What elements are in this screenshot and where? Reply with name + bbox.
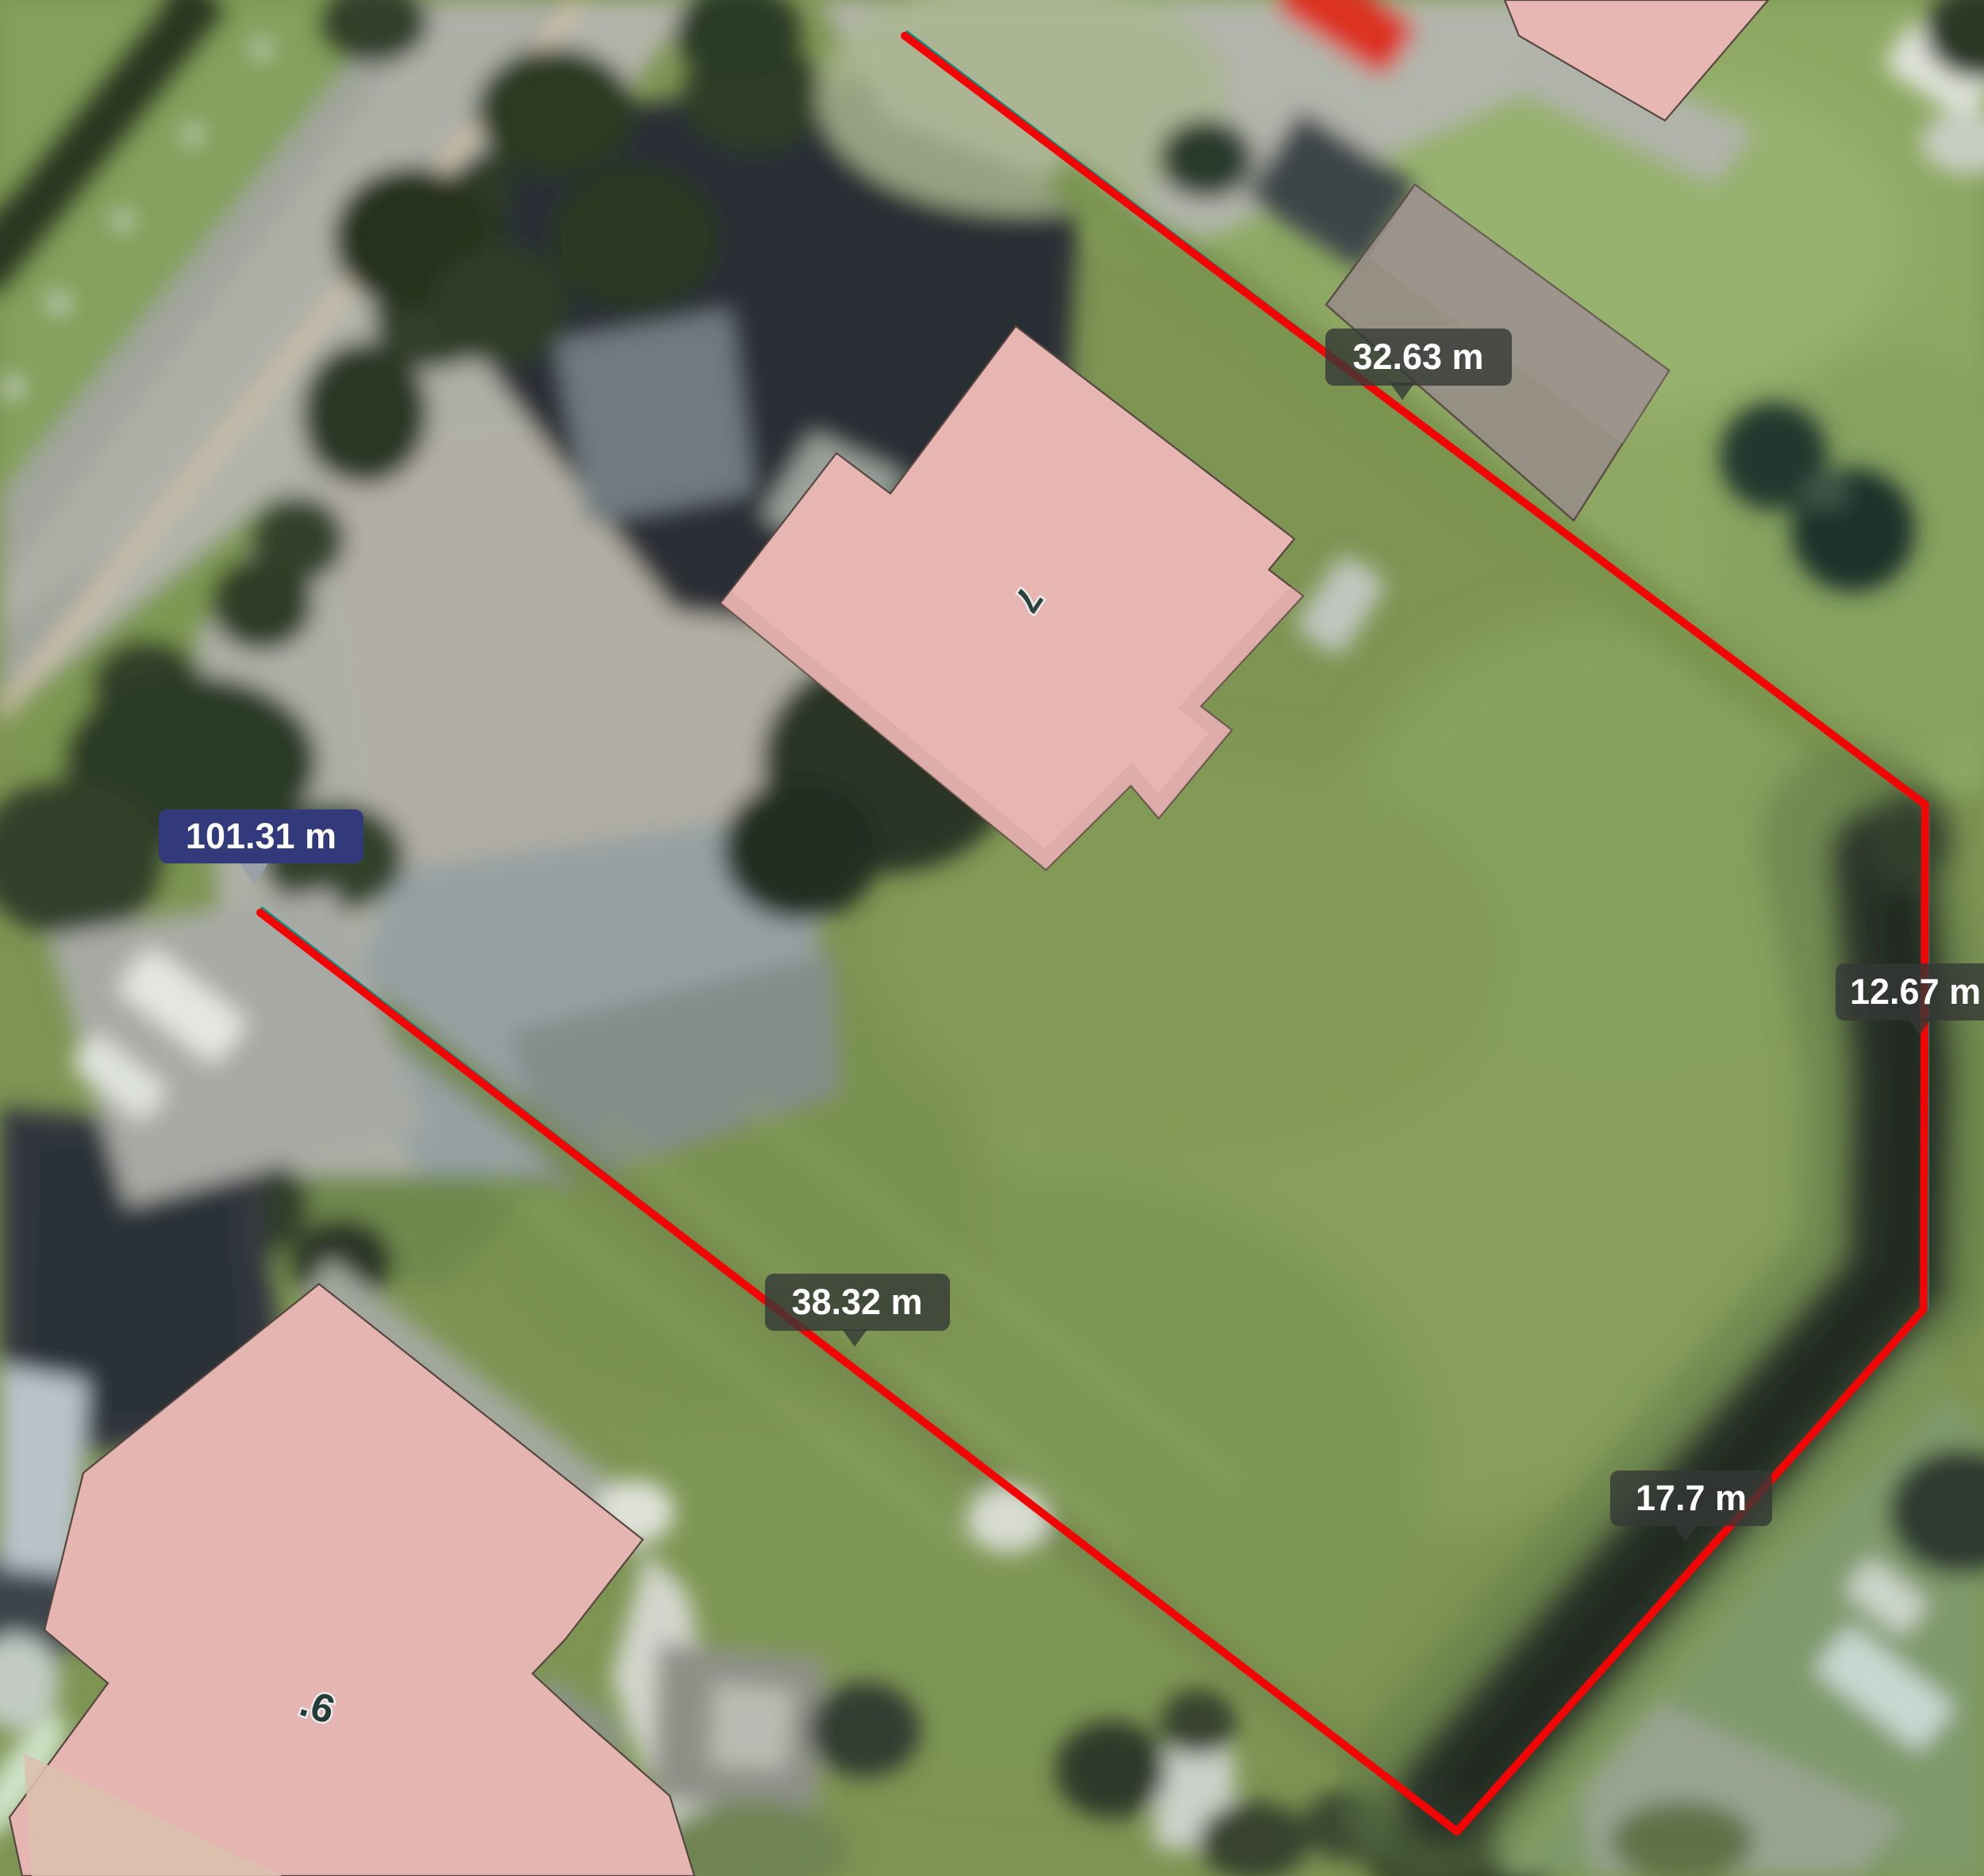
svg-text:17.7 m: 17.7 m bbox=[1636, 1478, 1747, 1518]
svg-text:101.31 m: 101.31 m bbox=[186, 816, 336, 856]
svg-text:32.63 m: 32.63 m bbox=[1352, 336, 1483, 377]
svg-text:38.32 m: 38.32 m bbox=[791, 1282, 922, 1322]
svg-text:12.67 m: 12.67 m bbox=[1850, 971, 1981, 1012]
